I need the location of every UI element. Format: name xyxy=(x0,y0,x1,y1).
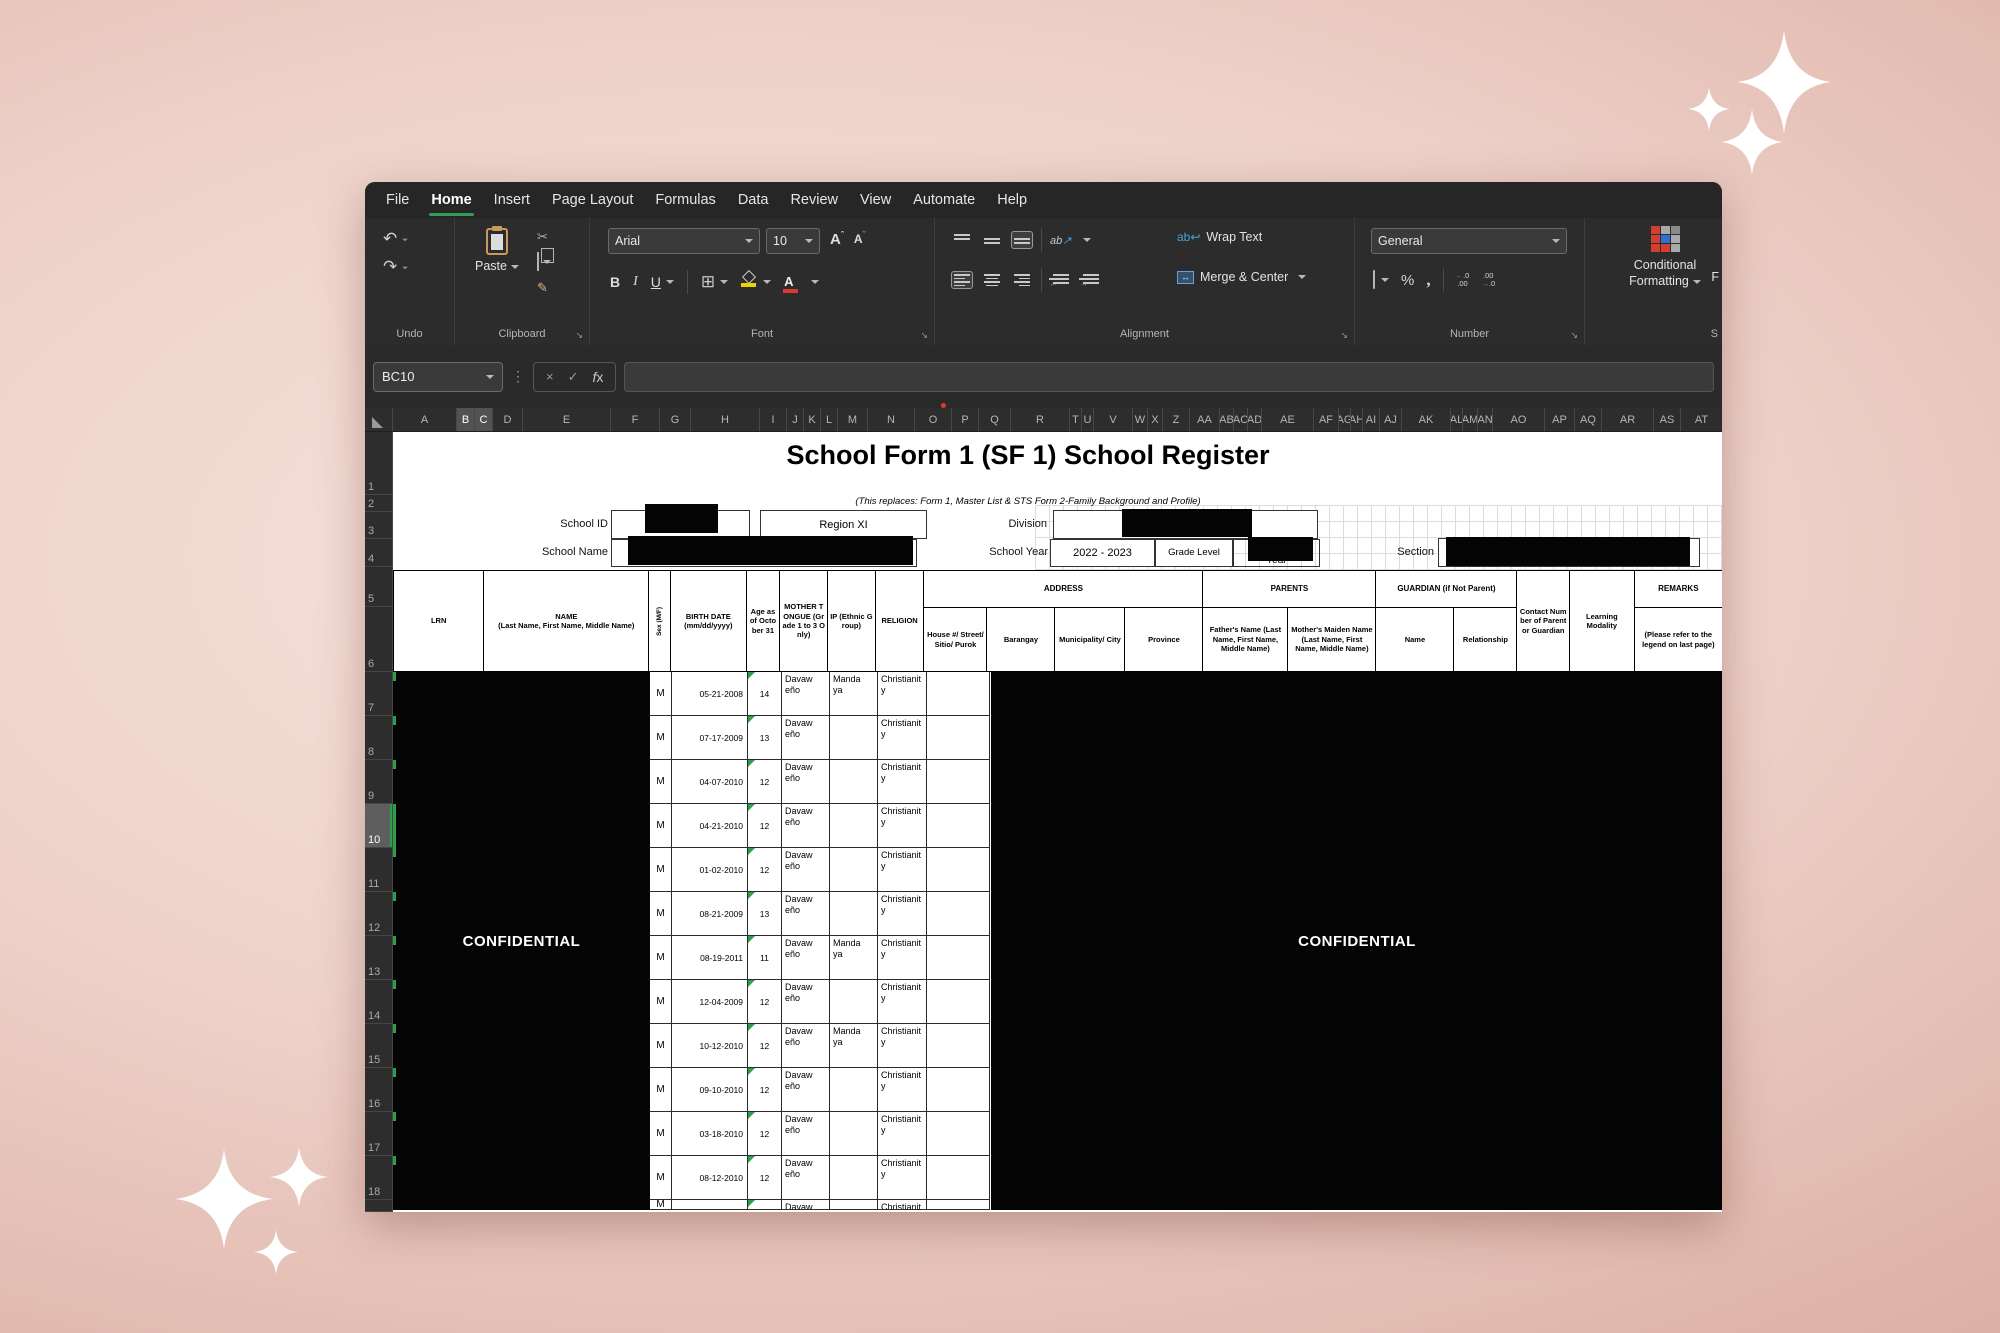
school-name-label: School Name xyxy=(453,546,608,558)
column-header-N[interactable]: N xyxy=(868,408,915,431)
table-row-9: M04-07-201012DavaweñoChristianity xyxy=(650,760,991,804)
align-top-button[interactable] xyxy=(951,231,973,249)
conditional-formatting-button[interactable]: ConditionalFormatting xyxy=(1619,226,1711,289)
cell-religion[interactable]: Christianity xyxy=(878,892,927,936)
header-lrn[interactable]: LRN xyxy=(394,571,484,671)
column-header-F[interactable]: F xyxy=(611,408,660,431)
menu-tab-view[interactable]: View xyxy=(849,182,902,218)
cell-birth_date[interactable]: 07-17-2009 xyxy=(672,716,748,760)
cell-religion[interactable]: Christianity xyxy=(878,672,927,716)
format-painter-button[interactable]: ✎ xyxy=(537,280,548,296)
row-header-6[interactable]: 6 xyxy=(365,607,392,672)
column-header-R[interactable]: R xyxy=(1011,408,1070,431)
row-header-13[interactable]: 13 xyxy=(365,936,392,980)
cell-birth_date[interactable]: 08-19-2011 xyxy=(672,936,748,980)
menu-tab-automate[interactable]: Automate xyxy=(902,182,986,218)
cell-ip[interactable]: Mandaya xyxy=(830,672,878,716)
column-header-O[interactable]: O xyxy=(915,408,952,431)
column-header-P[interactable]: P xyxy=(952,408,979,431)
table-row-7: M05-21-200814DavaweñoMandayaChristianity xyxy=(650,672,991,716)
row-header-2[interactable]: 2 xyxy=(365,495,392,512)
align-middle-button[interactable] xyxy=(981,231,1003,249)
insert-function-icon[interactable]: fx xyxy=(593,369,604,385)
underline-button[interactable]: U xyxy=(651,274,661,290)
cell-sex[interactable]: M xyxy=(650,936,672,980)
column-header-A[interactable]: A xyxy=(393,408,457,431)
cell-age[interactable]: 11 xyxy=(748,936,782,980)
column-header-X[interactable]: X xyxy=(1148,408,1163,431)
cell-age[interactable]: 12 xyxy=(748,1024,782,1068)
font-size-select[interactable]: 10 xyxy=(766,228,820,254)
table-row-17: M03-18-201012DavaweñoChristianity xyxy=(650,1112,991,1156)
cell-birth_date[interactable]: 09-10-2010 xyxy=(672,1068,748,1112)
cell-mother_tongue[interactable]: Davaweño xyxy=(782,804,830,848)
column-header-AO[interactable]: AO xyxy=(1493,408,1545,431)
column-header-I[interactable]: I xyxy=(760,408,787,431)
cell-mother_tongue[interactable]: Davaweño xyxy=(782,672,830,716)
row-header-8[interactable]: 8 xyxy=(365,716,392,760)
cell-age[interactable]: 12 xyxy=(748,1112,782,1156)
align-left-button[interactable] xyxy=(951,271,973,289)
cell-sex[interactable]: M xyxy=(650,672,672,716)
increase-indent-button[interactable]: → xyxy=(1080,271,1102,289)
page: { "menu": { "tabs": ["File", "Home", "In… xyxy=(0,0,2000,1333)
orientation-arrow-icon: ↗ xyxy=(1062,235,1071,247)
column-header-AE[interactable]: AE xyxy=(1262,408,1314,431)
ribbon-group-font: Arial 10 Aˆ Aˇ B I U ⊞ A Font ↘ xyxy=(590,218,935,345)
cell-religion[interactable]: Christianity xyxy=(878,1024,927,1068)
redo-icon: ↷ xyxy=(383,257,397,276)
header-remarks-group: REMARKS (Please refer to the legend on l… xyxy=(1635,571,1722,671)
cell-sex[interactable]: M xyxy=(650,980,672,1024)
cell-house[interactable] xyxy=(927,936,990,980)
cell-flag-icon xyxy=(393,936,396,945)
cell-birth_date[interactable]: 12-04-2009 xyxy=(672,980,748,1024)
cell-flag-icon xyxy=(393,1156,396,1165)
column-header-J[interactable]: J xyxy=(787,408,804,431)
cell-birth_date[interactable]: 08-21-2009 xyxy=(672,892,748,936)
header-remarks[interactable]: REMARKS xyxy=(1635,571,1722,608)
cell-mother_tongue[interactable]: Davaweño xyxy=(782,980,830,1024)
register-table-body: M05-21-200814DavaweñoMandayaChristianity… xyxy=(650,672,991,1210)
cell-flag-icon xyxy=(393,804,396,848)
cell-sex[interactable]: M xyxy=(650,1068,672,1112)
grade-level-cell[interactable]: Grade Level xyxy=(1155,539,1233,567)
confidential-text: CONFIDENTIAL xyxy=(1298,933,1416,950)
cell-flag-icon xyxy=(393,672,396,681)
header-age[interactable]: Age as of October 31 xyxy=(747,571,781,671)
cell-birth_date[interactable] xyxy=(672,1200,748,1210)
cell-religion[interactable]: Christianity xyxy=(878,980,927,1024)
format-as-table-button-clipped[interactable]: F xyxy=(1711,270,1719,284)
section-redaction xyxy=(1446,537,1690,566)
cancel-icon[interactable]: × xyxy=(546,369,554,384)
formula-input[interactable] xyxy=(624,362,1714,392)
menu-tab-insert[interactable]: Insert xyxy=(483,182,541,218)
header-barangay[interactable]: Barangay xyxy=(987,608,1055,671)
row-header-10[interactable]: 10 xyxy=(365,804,392,848)
font-dialog-launcher-icon[interactable]: ↘ xyxy=(920,330,928,341)
copy-button[interactable] xyxy=(537,253,551,271)
ribbon-group-undo: ↶ ↷ Undo xyxy=(365,218,455,345)
paste-button[interactable]: Paste xyxy=(469,228,525,273)
row-header-14[interactable]: 14 xyxy=(365,980,392,1024)
row-header-11[interactable]: 11 xyxy=(365,848,392,892)
cell-birth_date[interactable]: 10-12-2010 xyxy=(672,1024,748,1068)
header-remarks-note[interactable]: (Please refer to the legend on last page… xyxy=(1635,608,1722,671)
cell-age[interactable]: 12 xyxy=(748,980,782,1024)
column-header-AC[interactable]: AC xyxy=(1234,408,1248,431)
cell-sex[interactable]: M xyxy=(650,1112,672,1156)
cell-sex[interactable]: M xyxy=(650,716,672,760)
header-house[interactable]: House #/ Street/ Sitio/ Purok xyxy=(924,608,987,671)
cell-ip[interactable]: Mandaya xyxy=(830,936,878,980)
table-row-13: M08-19-201111DavaweñoMandayaChristianity xyxy=(650,936,991,980)
brush-icon: ✎ xyxy=(537,280,548,295)
cell-age[interactable]: 12 xyxy=(748,848,782,892)
increase-font-button[interactable]: Aˆ xyxy=(830,230,844,248)
cell-religion[interactable]: Christianity xyxy=(878,804,927,848)
group-label-number: Number xyxy=(1355,328,1584,340)
cell-house[interactable] xyxy=(927,1200,990,1210)
group-label-styles-clipped: S xyxy=(1711,328,1718,340)
menu-tab-data[interactable]: Data xyxy=(727,182,780,218)
column-header-E[interactable]: E xyxy=(523,408,611,431)
column-header-AN[interactable]: AN xyxy=(1478,408,1493,431)
cell-ip[interactable] xyxy=(830,716,878,760)
cell-age[interactable]: 12 xyxy=(748,804,782,848)
cell-mother_tongue[interactable]: Davaweño xyxy=(782,892,830,936)
cell-mother_tongue[interactable]: Davaweño xyxy=(782,1068,830,1112)
division-label: Division xyxy=(893,518,1047,530)
fill-color-button[interactable] xyxy=(741,272,756,292)
decrease-font-button[interactable]: Aˇ xyxy=(854,230,866,248)
sparkle-icon xyxy=(1721,109,1783,175)
formula-bar-divider: ⋮ xyxy=(511,368,525,385)
cell-sex[interactable]: M xyxy=(650,892,672,936)
cell-mother_tongue[interactable]: Davaweño xyxy=(782,1024,830,1068)
column-header-H[interactable]: H xyxy=(691,408,760,431)
decrease-indent-button[interactable]: ← xyxy=(1050,271,1072,289)
school-name-redaction xyxy=(628,536,913,565)
column-header-AG[interactable]: AG xyxy=(1339,408,1351,431)
select-all-corner[interactable] xyxy=(365,408,393,431)
cell-age[interactable] xyxy=(748,1200,782,1210)
undo-button[interactable]: ↶ xyxy=(383,230,409,248)
group-label-clipboard: Clipboard xyxy=(455,328,589,340)
cell-ip[interactable] xyxy=(830,804,878,848)
cell-ip[interactable] xyxy=(830,1156,878,1200)
scissors-icon: ✂ xyxy=(537,229,548,244)
ribbon: ↶ ↷ Undo Paste ✂ ✎ Clipboard ↘ Arial 10 … xyxy=(365,218,1722,345)
menu-tab-file[interactable]: File xyxy=(375,182,420,218)
row-header-16[interactable]: 16 xyxy=(365,1068,392,1112)
paste-clipboard-icon xyxy=(486,228,508,255)
font-color-button[interactable]: A xyxy=(784,273,793,291)
cell-ip[interactable] xyxy=(830,1112,878,1156)
cell-flag-icon xyxy=(393,716,396,725)
merge-center-button[interactable]: ↔Merge & Center xyxy=(1177,270,1306,284)
menu-tab-review[interactable]: Review xyxy=(779,182,849,218)
number-dialog-launcher-icon[interactable]: ↘ xyxy=(1570,330,1578,341)
form-subtitle: (This replaces: Form 1, Master List & ST… xyxy=(393,496,1663,507)
column-header-AI[interactable]: AI xyxy=(1363,408,1380,431)
sparkle-icon xyxy=(270,1147,328,1207)
cell-house[interactable] xyxy=(927,672,990,716)
school-id-label: School ID xyxy=(453,518,608,530)
column-header-V[interactable]: V xyxy=(1094,408,1133,431)
table-row-12: M08-21-200913DavaweñoChristianity xyxy=(650,892,991,936)
table-row-14: M12-04-200912DavaweñoChristianity xyxy=(650,980,991,1024)
cell-sex[interactable]: M xyxy=(650,760,672,804)
cell-flag-icon xyxy=(393,1068,396,1077)
cell-age[interactable]: 12 xyxy=(748,760,782,804)
cell-sex[interactable]: M xyxy=(650,1200,672,1210)
cell-sex[interactable]: M xyxy=(650,1024,672,1068)
menu-tab-home[interactable]: Home xyxy=(420,182,482,218)
header-religion[interactable]: RELIGION xyxy=(876,571,925,671)
cell-religion[interactable]: Christianity xyxy=(878,1200,927,1210)
column-header-AA[interactable]: AA xyxy=(1190,408,1220,431)
column-header-AQ[interactable]: AQ xyxy=(1575,408,1602,431)
italic-button[interactable]: I xyxy=(633,274,638,290)
row-header-3[interactable]: 3 xyxy=(365,512,392,539)
cell-age[interactable]: 13 xyxy=(748,716,782,760)
school-id-redaction xyxy=(645,504,718,533)
cell-sex[interactable]: M xyxy=(650,804,672,848)
grade-level-redaction xyxy=(1248,537,1313,561)
column-header-U[interactable]: U xyxy=(1082,408,1094,431)
ribbon-group-number: General % , ←.0.00 .00→.0 Number ↘ xyxy=(1355,218,1585,345)
column-header-C[interactable]: C xyxy=(475,408,493,431)
header-sex[interactable]: Sex (M/F) xyxy=(649,571,671,671)
column-header-K[interactable]: K xyxy=(804,408,821,431)
column-header-D[interactable]: D xyxy=(493,408,523,431)
decrease-decimal-button[interactable]: .00→.0 xyxy=(1481,272,1495,288)
menu-tab-help[interactable]: Help xyxy=(986,182,1038,218)
cell-ip[interactable] xyxy=(830,1200,878,1210)
enter-icon[interactable]: ✓ xyxy=(568,369,579,385)
header-mother-name[interactable]: Mother's Maiden Name (Last Name, First N… xyxy=(1288,608,1375,671)
column-header-AM[interactable]: AM xyxy=(1463,408,1478,431)
cell-religion[interactable]: Christianity xyxy=(878,716,927,760)
cell-ip[interactable]: Mandaya xyxy=(830,1024,878,1068)
cell-mother_tongue[interactable]: Davaweño xyxy=(782,716,830,760)
comma-style-button[interactable]: , xyxy=(1426,270,1430,290)
undo-icon: ↶ xyxy=(383,229,397,248)
column-header-AP[interactable]: AP xyxy=(1545,408,1575,431)
cell-house[interactable] xyxy=(927,804,990,848)
cell-age[interactable]: 12 xyxy=(748,1156,782,1200)
wrap-text-button[interactable]: ab↩Wrap Text xyxy=(1177,230,1262,244)
register-table-header: LRN NAME (Last Name, First Name, Middle … xyxy=(393,570,1722,672)
row-header-4[interactable]: 4 xyxy=(365,539,392,567)
cell-house[interactable] xyxy=(927,848,990,892)
borders-icon: ⊞ xyxy=(701,272,715,291)
cell-birth_date[interactable]: 08-12-2010 xyxy=(672,1156,748,1200)
header-guardian-group: GUARDIAN (if Not Parent) Name Relationsh… xyxy=(1376,571,1517,671)
cell-birth_date[interactable]: 05-21-2008 xyxy=(672,672,748,716)
cell-age[interactable]: 14 xyxy=(748,672,782,716)
align-right-button[interactable] xyxy=(1011,271,1033,289)
header-parents-group: PARENTS Father's Name (Last Name, First … xyxy=(1203,571,1376,671)
cell-birth_date[interactable]: 04-07-2010 xyxy=(672,760,748,804)
column-header-AK[interactable]: AK xyxy=(1402,408,1451,431)
menu-tab-page-layout[interactable]: Page Layout xyxy=(541,182,644,218)
header-contact-number[interactable]: Contact Number of Parent or Guardian xyxy=(1517,571,1570,671)
row-headers: 123456789101112131415161718 xyxy=(365,432,393,1212)
borders-button[interactable]: ⊞ xyxy=(701,272,715,292)
cell-religion[interactable]: Christianity xyxy=(878,1112,927,1156)
cell-birth_date[interactable]: 01-02-2010 xyxy=(672,848,748,892)
table-row-18: M08-12-201012DavaweñoChristianity xyxy=(650,1156,991,1200)
cell-religion[interactable]: Christianity xyxy=(878,1156,927,1200)
column-header-Z[interactable]: Z xyxy=(1163,408,1190,431)
cell-mother_tongue[interactable]: Davaweño xyxy=(782,760,830,804)
font-name-select[interactable]: Arial xyxy=(608,228,760,254)
column-headers: ABCDEFGHIJKLMNOPQRTUVWXZAAABACADAEAFAGAH… xyxy=(365,408,1722,432)
cell-ip[interactable] xyxy=(830,760,878,804)
division-redaction xyxy=(1122,509,1252,537)
cell-house[interactable] xyxy=(927,716,990,760)
header-ip[interactable]: IP (Ethnic Group) xyxy=(828,571,876,671)
cell-house[interactable] xyxy=(927,1024,990,1068)
row-header-12[interactable]: 12 xyxy=(365,892,392,936)
header-father-name[interactable]: Father's Name (Last Name, First Name, Mi… xyxy=(1203,608,1288,671)
table-row-11: M01-02-201012DavaweñoChristianity xyxy=(650,848,991,892)
column-header-AL[interactable]: AL xyxy=(1451,408,1463,431)
row-header-15[interactable]: 15 xyxy=(365,1024,392,1068)
cell-house[interactable] xyxy=(927,760,990,804)
column-header-B[interactable]: B xyxy=(457,408,475,431)
ribbon-group-clipboard: Paste ✂ ✎ Clipboard ↘ xyxy=(455,218,590,345)
cell-mother_tongue[interactable]: Davaweño xyxy=(782,848,830,892)
header-parents[interactable]: PARENTS xyxy=(1203,571,1375,608)
fill-color-icon xyxy=(741,272,756,287)
column-header-L[interactable]: L xyxy=(821,408,838,431)
cell-house[interactable] xyxy=(927,1156,990,1200)
column-header-AJ[interactable]: AJ xyxy=(1380,408,1402,431)
accounting-format-button[interactable] xyxy=(1373,271,1375,289)
header-province[interactable]: Province xyxy=(1125,608,1202,671)
formula-controls: × ✓ fx xyxy=(533,362,616,392)
cell-religion[interactable]: Christianity xyxy=(878,936,927,980)
cell-ip[interactable] xyxy=(830,848,878,892)
redo-button[interactable]: ↷ xyxy=(383,258,409,276)
header-municipality[interactable]: Municipality/ City xyxy=(1055,608,1125,671)
cell-mother_tongue[interactable]: Davaweño xyxy=(782,1156,830,1200)
column-header-AT[interactable]: AT xyxy=(1681,408,1722,431)
header-address[interactable]: ADDRESS xyxy=(924,571,1202,608)
spreadsheet: School Form 1 (SF 1) School Register (Th… xyxy=(393,432,1722,1212)
cell-mother_tongue[interactable]: Davaweño xyxy=(782,936,830,980)
cell-religion[interactable]: Christianity xyxy=(878,760,927,804)
ribbon-group-alignment: ab↗ ← → ab↩Wrap Text ↔Merge & Center Ali… xyxy=(935,218,1355,345)
align-center-button[interactable] xyxy=(981,271,1003,289)
cell-flag-icon xyxy=(393,980,396,989)
formula-bar: BC10 ⋮ × ✓ fx xyxy=(365,345,1722,408)
cell-age[interactable]: 13 xyxy=(748,892,782,936)
alignment-dialog-launcher-icon[interactable]: ↘ xyxy=(1340,330,1348,341)
header-learning-modality[interactable]: Learning Modality xyxy=(1570,571,1635,671)
school-year-label: School Year xyxy=(893,546,1048,558)
cell-mother_tongue[interactable]: Davaweño xyxy=(782,1112,830,1156)
row-header-partial[interactable] xyxy=(365,1200,392,1212)
name-box[interactable]: BC10 xyxy=(373,362,503,392)
school-year-cell[interactable]: 2022 - 2023 xyxy=(1050,539,1155,567)
header-birth-date[interactable]: BIRTH DATE (mm/dd/yyyy) xyxy=(671,571,746,671)
cell-house[interactable] xyxy=(927,1068,990,1112)
column-header-AR[interactable]: AR xyxy=(1602,408,1654,431)
font-color-icon: A xyxy=(784,275,793,288)
header-name[interactable]: NAME (Last Name, First Name, Middle Name… xyxy=(484,571,649,671)
copy-icon xyxy=(537,252,539,271)
column-header-W[interactable]: W xyxy=(1133,408,1148,431)
row-header-7[interactable]: 7 xyxy=(365,672,392,716)
row-header-17[interactable]: 17 xyxy=(365,1112,392,1156)
column-header-AF[interactable]: AF xyxy=(1314,408,1339,431)
header-guardian[interactable]: GUARDIAN (if Not Parent) xyxy=(1376,571,1516,608)
form-title: School Form 1 (SF 1) School Register xyxy=(393,440,1663,471)
cell-sex[interactable]: M xyxy=(650,1156,672,1200)
cell-sex[interactable]: M xyxy=(650,848,672,892)
cell-religion[interactable]: Christianity xyxy=(878,1068,927,1112)
ribbon-tab-bar: FileHomeInsertPage LayoutFormulasDataRev… xyxy=(365,182,1722,218)
column-header-AS[interactable]: AS xyxy=(1654,408,1681,431)
header-guardian-name[interactable]: Name xyxy=(1376,608,1454,671)
cell-ip[interactable] xyxy=(830,892,878,936)
cell-mother_tongue[interactable]: Davaweño xyxy=(782,1200,830,1210)
row-header-18[interactable]: 18 xyxy=(365,1156,392,1200)
cell-house[interactable] xyxy=(927,892,990,936)
column-header-Q[interactable]: Q xyxy=(979,408,1011,431)
cell-age[interactable]: 12 xyxy=(748,1068,782,1112)
row-header-9[interactable]: 9 xyxy=(365,760,392,804)
cell-ip[interactable] xyxy=(830,980,878,1024)
table-row-10: M04-21-201012DavaweñoChristianity xyxy=(650,804,991,848)
orientation-button[interactable]: ab↗ xyxy=(1050,234,1071,247)
cell-birth_date[interactable]: 03-18-2010 xyxy=(672,1112,748,1156)
increase-decimal-button[interactable]: ←.0.00 xyxy=(1456,272,1470,288)
cell-flag-icon xyxy=(393,892,396,901)
row-header-1[interactable]: 1 xyxy=(365,432,392,495)
cell-ip[interactable] xyxy=(830,1068,878,1112)
group-label-undo: Undo xyxy=(365,328,454,340)
header-mother-tongue[interactable]: MOTHER TONGUE (Grade 1 to 3 Only) xyxy=(780,571,828,671)
cell-house[interactable] xyxy=(927,1112,990,1156)
percent-style-button[interactable]: % xyxy=(1401,272,1414,289)
column-header-AB[interactable]: AB xyxy=(1220,408,1234,431)
cell-religion[interactable]: Christianity xyxy=(878,848,927,892)
paste-label: Paste xyxy=(475,259,507,273)
cell-birth_date[interactable]: 04-21-2010 xyxy=(672,804,748,848)
ribbon-group-styles: ConditionalFormatting F S xyxy=(1585,218,1722,345)
clipboard-dialog-launcher-icon[interactable]: ↘ xyxy=(575,330,583,341)
number-format-select[interactable]: General xyxy=(1371,228,1567,254)
column-header-AD[interactable]: AD xyxy=(1248,408,1262,431)
column-header-G[interactable]: G xyxy=(660,408,691,431)
cell-house[interactable] xyxy=(927,980,990,1024)
cut-button[interactable]: ✂ xyxy=(537,230,548,244)
menu-tab-formulas[interactable]: Formulas xyxy=(644,182,726,218)
column-header-T[interactable]: T xyxy=(1070,408,1082,431)
column-header-M[interactable]: M xyxy=(838,408,868,431)
column-header-AH[interactable]: AH xyxy=(1351,408,1363,431)
header-relationship[interactable]: Relationship xyxy=(1454,608,1516,671)
bold-button[interactable]: B xyxy=(610,274,620,290)
align-bottom-button[interactable] xyxy=(1011,231,1033,249)
row-header-5[interactable]: 5 xyxy=(365,567,392,607)
